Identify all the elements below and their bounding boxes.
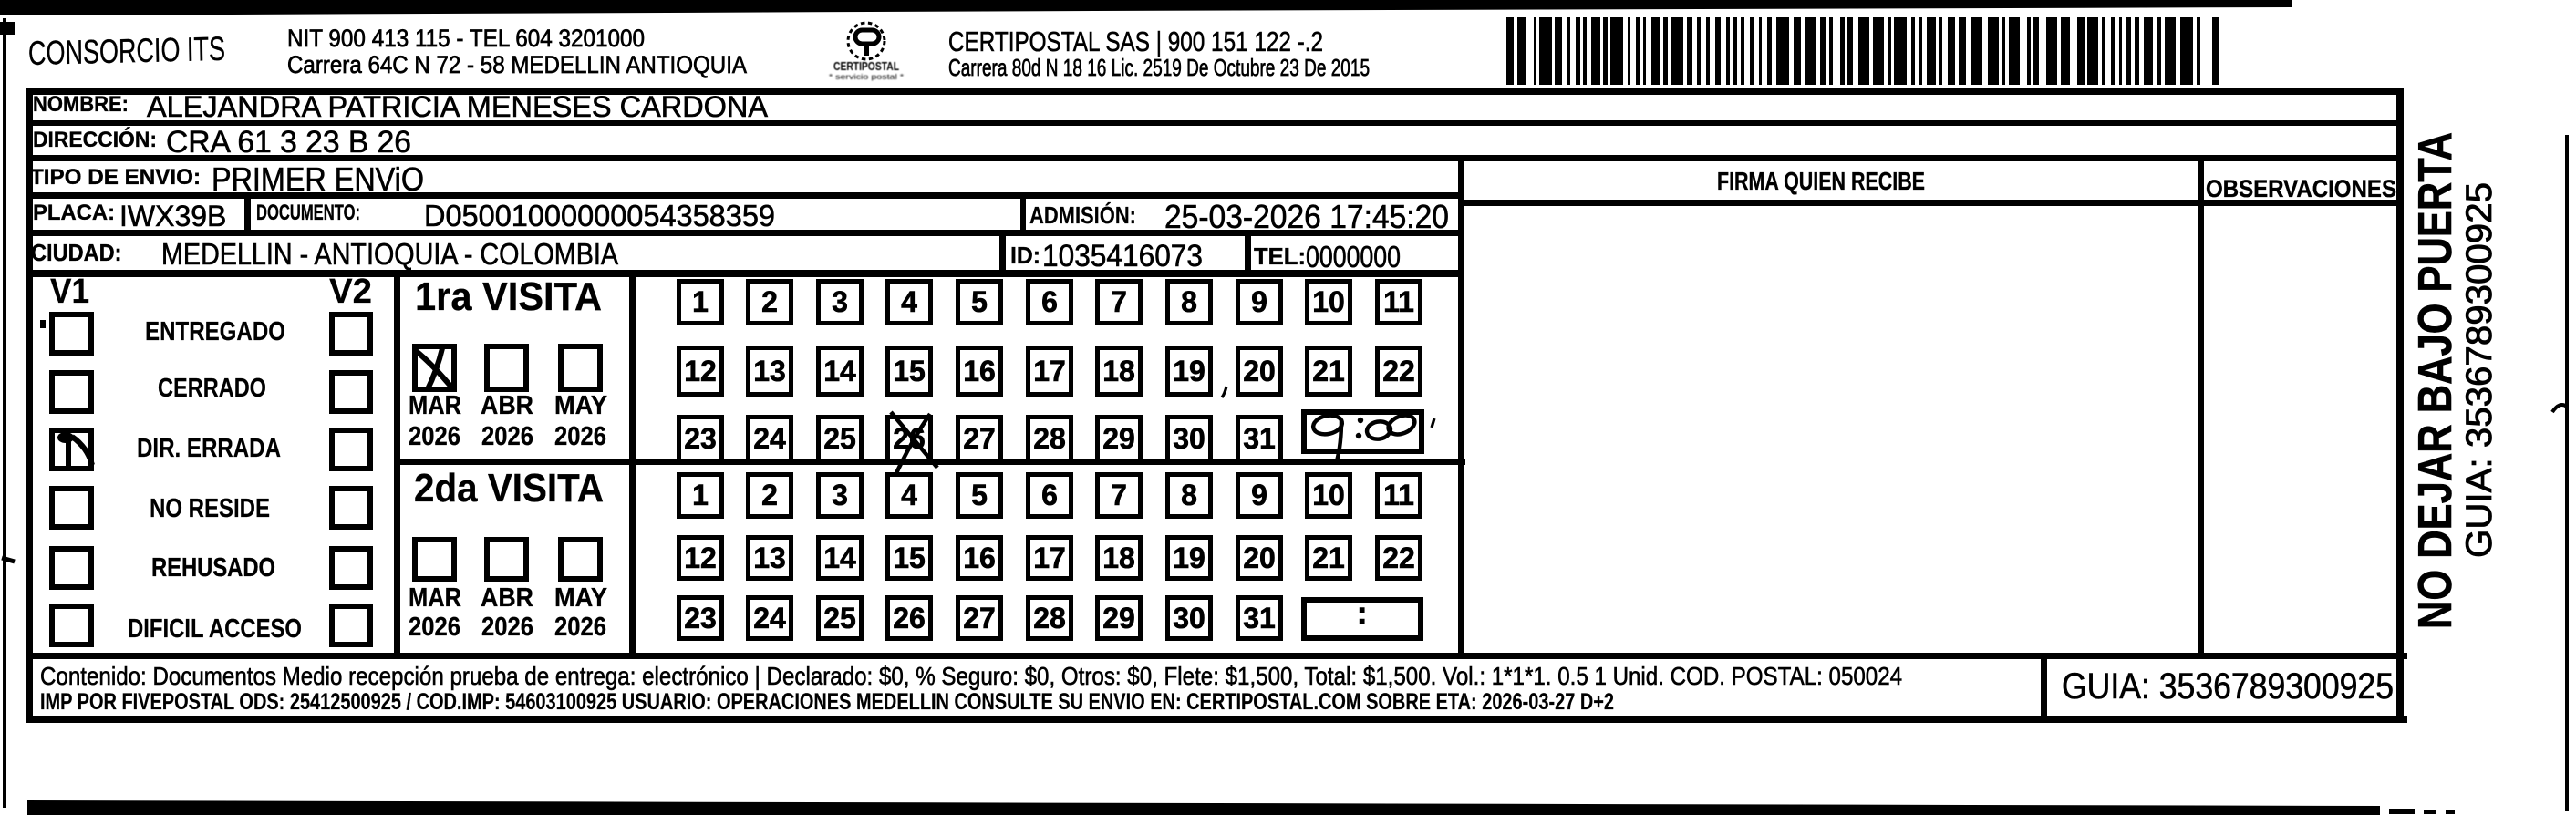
svg-text:CERTIPOSTAL: CERTIPOSTAL — [833, 60, 899, 73]
svg-text:* servicio postal *: * servicio postal * — [829, 73, 904, 81]
